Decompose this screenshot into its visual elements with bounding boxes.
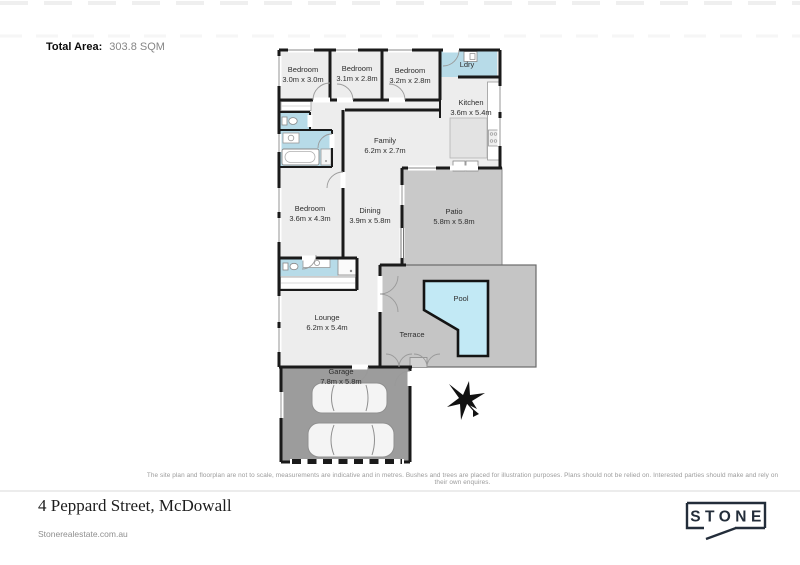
toilet-icon — [282, 117, 287, 125]
car-icon — [312, 383, 387, 413]
disclaimer-text: The site plan and floorplan are not to s… — [140, 472, 785, 486]
room-label-garage: Garage7.8m x 5.8m — [320, 367, 361, 387]
shower-icon — [338, 258, 356, 275]
address-text: 4 Peppard Street, McDowall — [38, 496, 232, 516]
kitchen-island — [450, 118, 487, 158]
room-label-bedroom4: Bedroom3.6m x 4.3m — [289, 204, 330, 224]
shower-icon — [321, 149, 331, 165]
room-label-terrace: Terrace — [399, 330, 424, 340]
stone-logo: STONE — [687, 503, 766, 539]
room-label-bedroom1: Bedroom3.0m x 3.0m — [282, 65, 323, 85]
brand-text: STONE — [690, 509, 766, 526]
website-text: Stonerealestate.com.au — [38, 529, 128, 539]
floorplan-page: STONE Total Area: 303.8 SQM Bedroom3.0m … — [0, 0, 800, 565]
cooktop-icon — [489, 130, 499, 146]
room-label-bedroom2: Bedroom3.1m x 2.8m — [336, 64, 377, 84]
compass-icon — [447, 381, 485, 420]
car-icon — [308, 423, 394, 457]
room-label-laundry: Ldry — [460, 60, 475, 70]
room-label-dining: Dining3.9m x 5.8m — [349, 206, 390, 226]
room-label-family: Family6.2m x 2.7m — [364, 136, 405, 156]
room-label-kitchen: Kitchen3.6m x 5.4m — [450, 98, 491, 118]
toilet-icon — [283, 263, 288, 270]
kitchen-counter — [488, 82, 500, 160]
vanity-icon — [283, 133, 299, 143]
total-area: Total Area: 303.8 SQM — [46, 41, 165, 53]
total-area-value: 303.8 SQM — [109, 41, 165, 53]
room-label-lounge: Lounge6.2m x 5.4m — [306, 313, 347, 333]
total-area-label: Total Area: — [46, 41, 102, 53]
room-label-pool: Pool — [453, 294, 468, 304]
room-label-bedroom3: Bedroom3.2m x 2.8m — [389, 66, 430, 86]
room-label-patio: Patio5.8m x 5.8m — [433, 207, 474, 227]
